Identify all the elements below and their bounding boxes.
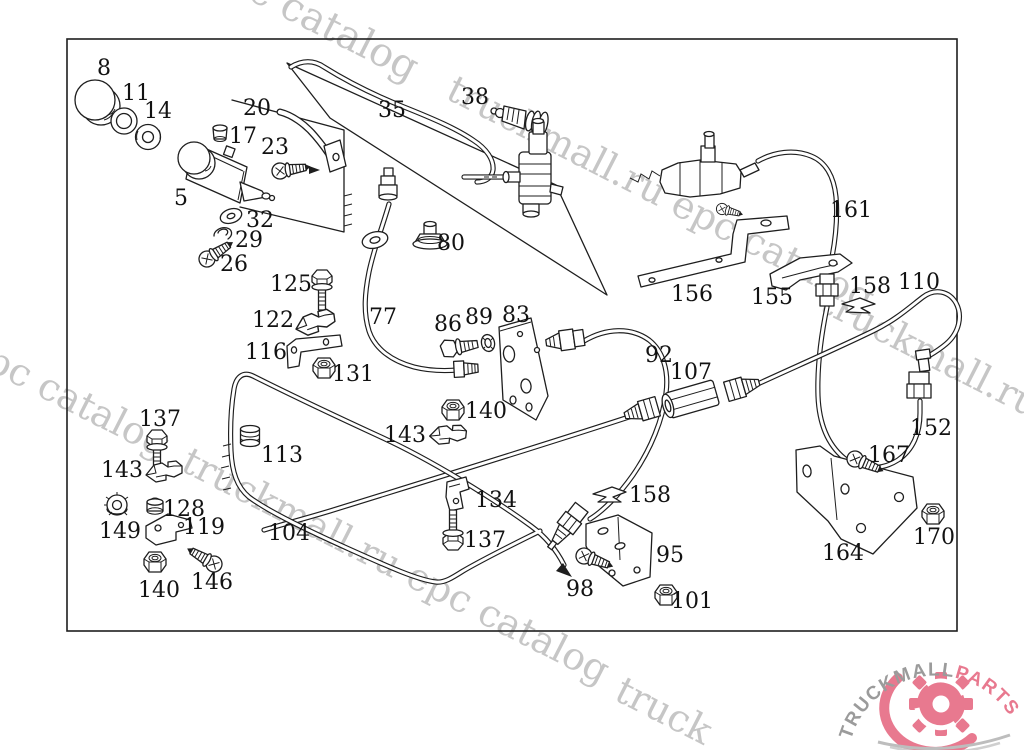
parts-catalog-page: c catalogtruckmall.ru epc catalogepc cat… <box>0 0 1024 750</box>
grommet-113 <box>241 426 260 447</box>
clip-143 <box>146 461 182 482</box>
mid-fasteners <box>287 270 548 447</box>
nut-140 <box>442 400 464 420</box>
screw-23 <box>271 159 320 180</box>
part-label-131-17: 131 <box>332 362 374 387</box>
pipe-end-arrow <box>556 563 572 577</box>
part-label-116-16: 116 <box>245 340 287 365</box>
master-cylinder-group <box>75 80 346 270</box>
fitting-86 <box>439 335 479 359</box>
part-label-143-29: 143 <box>384 423 426 448</box>
plug-17 <box>213 125 227 142</box>
part-label-5-8: 5 <box>174 186 188 211</box>
part-label-134-37: 134 <box>475 488 517 513</box>
part-label-164-47: 164 <box>822 541 864 566</box>
truckmall-parts-logo: TRUCKMALLPARTS <box>836 660 1024 750</box>
bracket-134 <box>446 477 469 511</box>
clip-122 <box>294 308 336 336</box>
part-label-35-6: 35 <box>378 98 406 123</box>
part-label-170-48: 170 <box>913 525 955 550</box>
part-label-92-26: 92 <box>645 343 673 368</box>
flare-nut-left <box>622 397 660 426</box>
bracket-95 <box>586 515 652 586</box>
watermark-text-5: truck <box>608 668 720 750</box>
part-label-143-32: 143 <box>101 458 143 483</box>
flare-nut-right <box>724 373 762 402</box>
part-label-26-11: 26 <box>220 252 248 277</box>
part-label-149-34: 149 <box>99 519 141 544</box>
part-label-137-38: 137 <box>464 528 506 553</box>
part-label-89-20: 89 <box>465 305 493 330</box>
part-label-152-45: 152 <box>910 416 952 441</box>
part-label-113-30: 113 <box>261 443 303 468</box>
bracket-20 <box>280 112 346 172</box>
part-label-125-14: 125 <box>270 272 312 297</box>
part-label-14-2: 14 <box>144 99 172 124</box>
part-label-140-44: 140 <box>138 578 180 603</box>
serrated-nut-149 <box>104 492 128 515</box>
part-label-95-40: 95 <box>656 543 684 568</box>
nut-140 <box>144 552 166 572</box>
part-label-158-24: 158 <box>849 274 891 299</box>
part-label-140-28: 140 <box>465 399 507 424</box>
part-label-110-25: 110 <box>898 270 940 295</box>
part-label-107-27: 107 <box>670 360 712 385</box>
part-label-161-13: 161 <box>830 198 872 223</box>
watermark-text-0: c catalog <box>242 0 427 91</box>
part-label-146-43: 146 <box>191 570 233 595</box>
part-label-119-35: 119 <box>183 515 225 540</box>
spacer-128 <box>147 498 163 514</box>
part-label-86-19: 86 <box>434 312 462 337</box>
part-label-122-15: 122 <box>252 308 294 333</box>
part-label-80-12: 80 <box>437 231 465 256</box>
part-label-29-10: 29 <box>235 228 263 253</box>
part-label-101-42: 101 <box>671 589 713 614</box>
part-label-83-21: 83 <box>502 303 530 328</box>
part-label-20-3: 20 <box>243 96 271 121</box>
part-label-98-41: 98 <box>566 577 594 602</box>
part-label-104-36: 104 <box>268 521 310 546</box>
part-label-8-0: 8 <box>97 56 111 81</box>
nut-170 <box>922 504 944 524</box>
part-label-158-39: 158 <box>629 483 671 508</box>
clutch-lines-parts-diagram: c catalogtruckmall.ru epc catalogepc cat… <box>0 0 1024 750</box>
washer-89 <box>480 333 496 352</box>
part-label-155-23: 155 <box>751 285 793 310</box>
part-label-23-5: 23 <box>261 135 289 160</box>
outlet-spout <box>240 182 266 201</box>
part-label-17-4: 17 <box>229 124 257 149</box>
bolt-137 <box>443 510 463 550</box>
part-label-77-18: 77 <box>369 305 397 330</box>
bolt-125 <box>312 270 332 310</box>
part-label-156-22: 156 <box>671 282 713 307</box>
lock-washer-29 <box>214 228 232 239</box>
part-label-167-46: 167 <box>868 443 910 468</box>
part-label-137-31: 137 <box>139 407 181 432</box>
watermark-text-3: truckmall.ru epc catalog <box>175 438 617 692</box>
part-label-38-7: 38 <box>461 85 489 110</box>
clip-143 <box>429 422 467 447</box>
